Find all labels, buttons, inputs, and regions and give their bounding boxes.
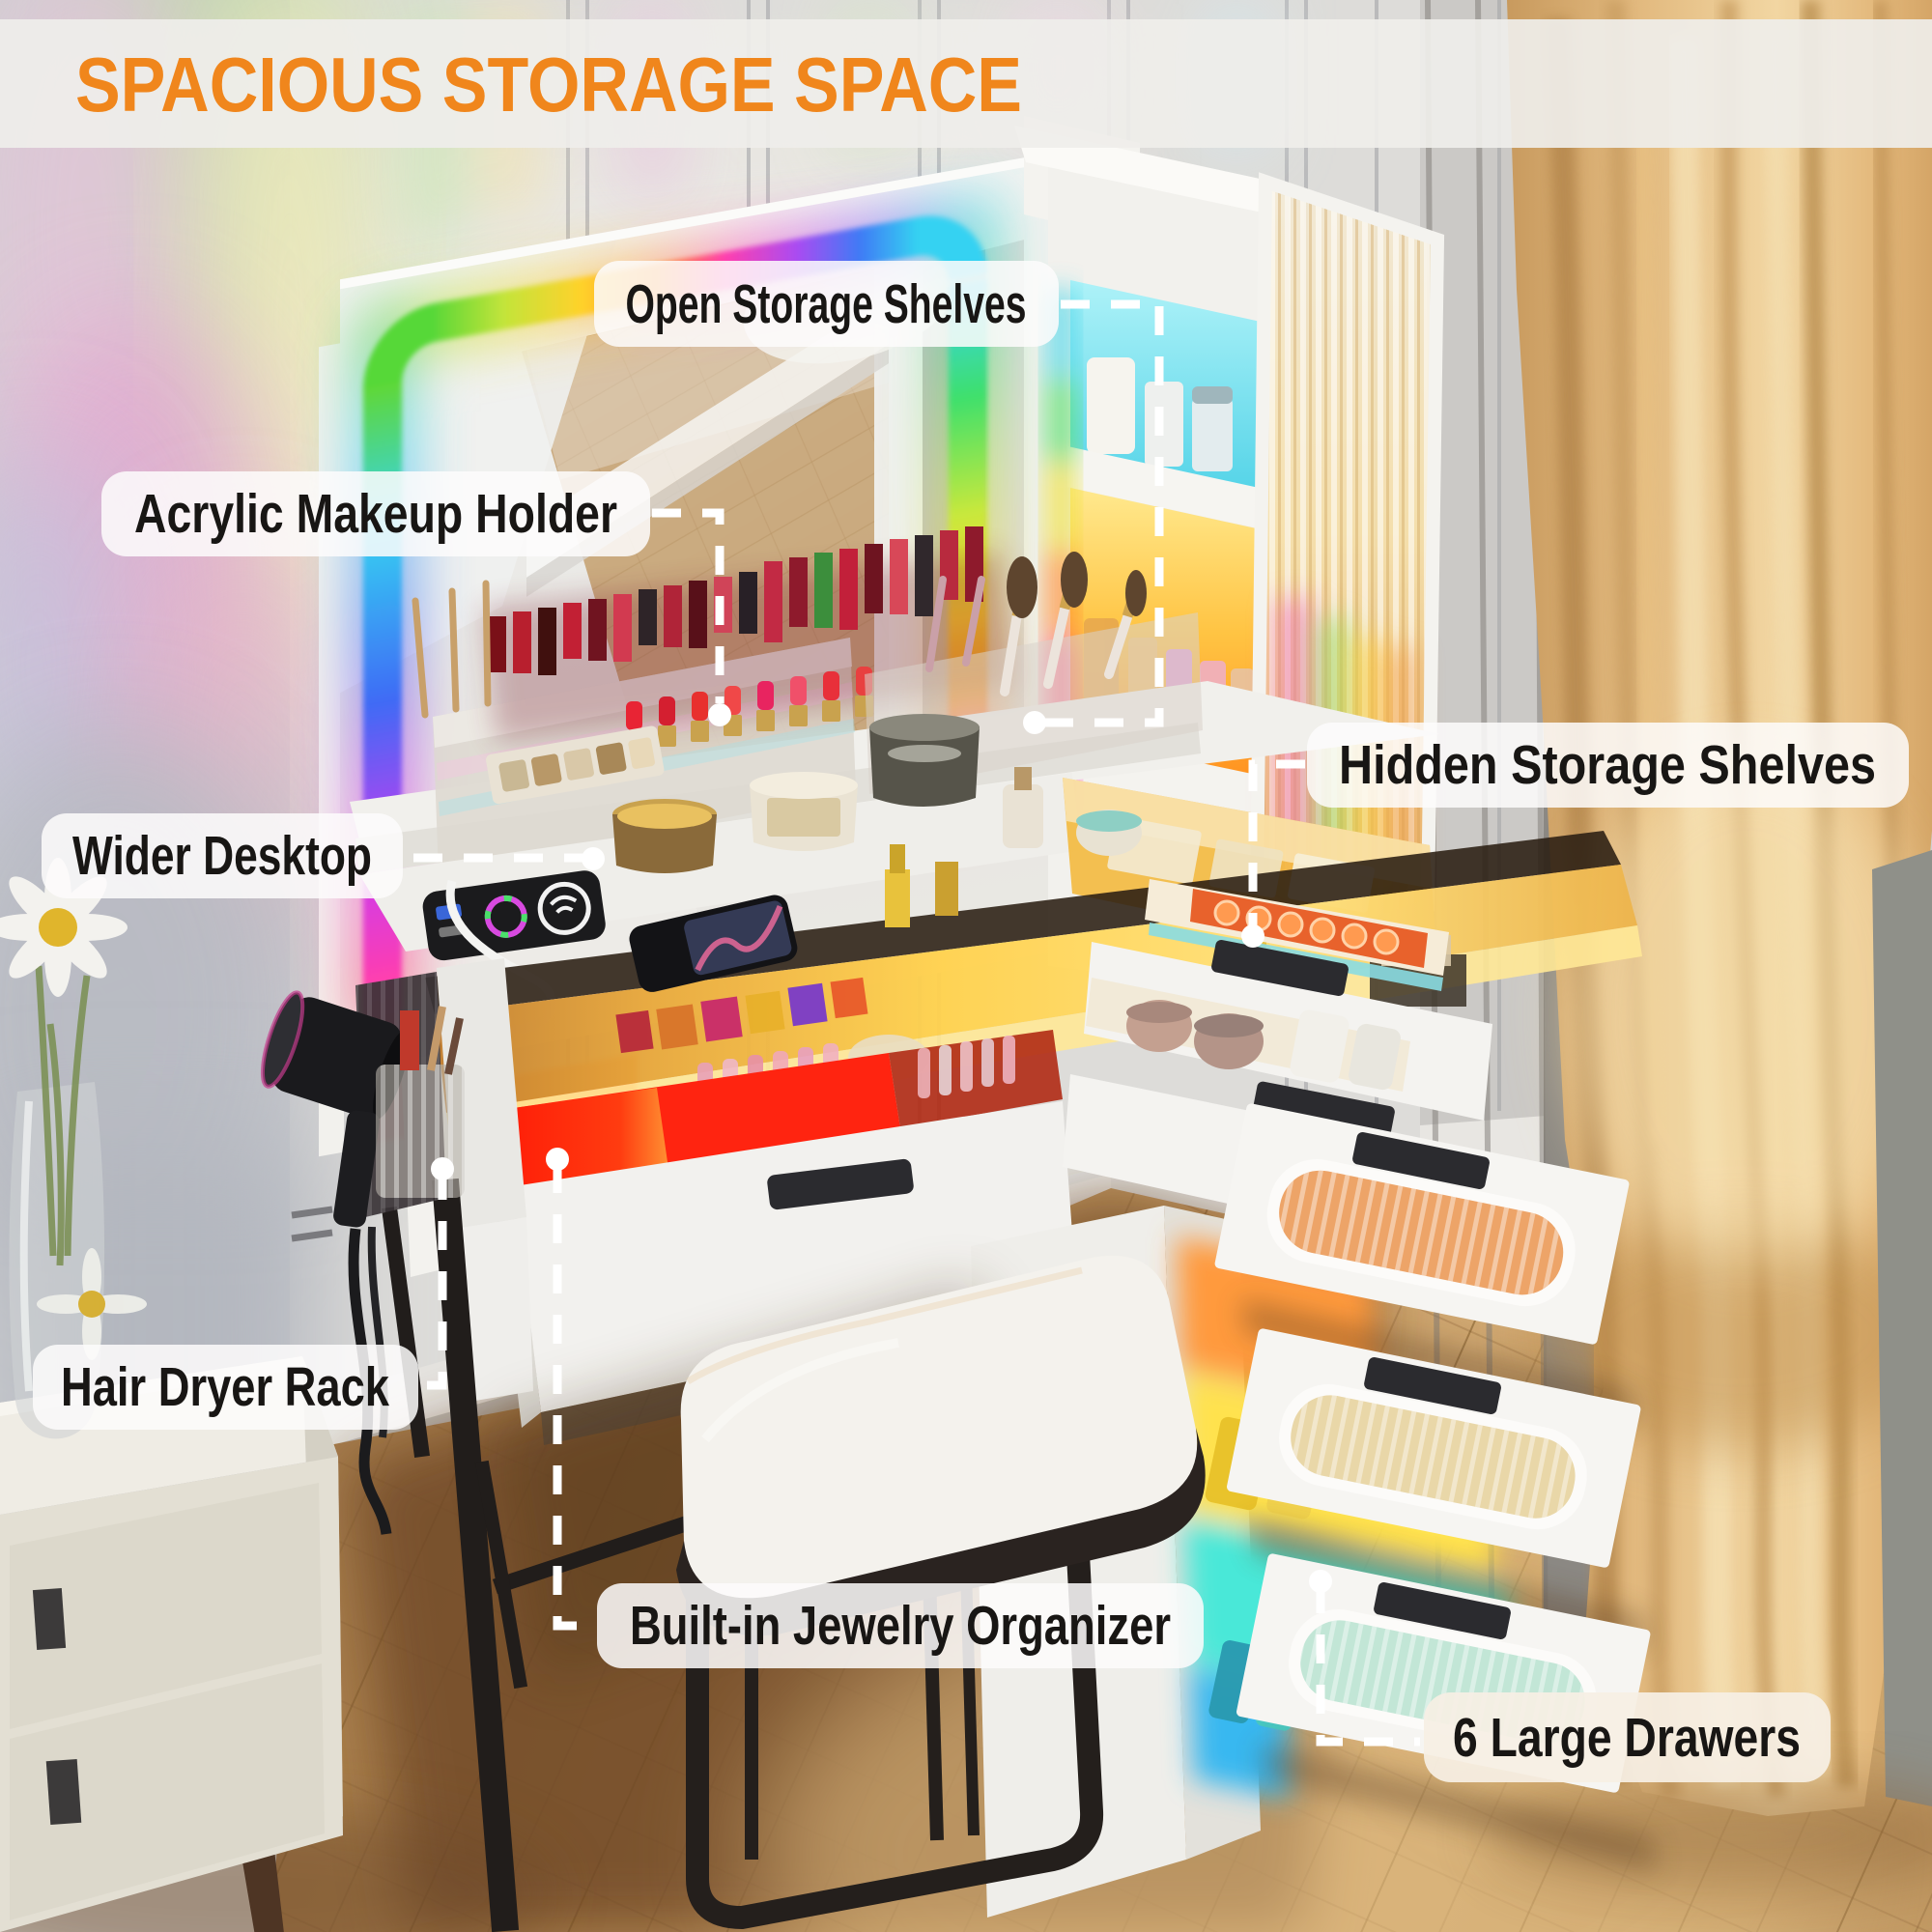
svg-text:Built-in Jewelry Organizer: Built-in Jewelry Organizer bbox=[630, 1595, 1171, 1657]
svg-text:6 Large Drawers: 6 Large Drawers bbox=[1453, 1707, 1801, 1769]
svg-text:Wider Desktop: Wider Desktop bbox=[72, 825, 372, 887]
svg-text:Hidden Storage Shelves: Hidden Storage Shelves bbox=[1339, 734, 1876, 796]
svg-text:Hair Dryer Rack: Hair Dryer Rack bbox=[61, 1356, 389, 1418]
svg-text:Acrylic Makeup Holder: Acrylic Makeup Holder bbox=[134, 483, 617, 545]
svg-text:SPACIOUS STORAGE SPACE: SPACIOUS STORAGE SPACE bbox=[75, 42, 1022, 128]
svg-text:Open Storage Shelves: Open Storage Shelves bbox=[626, 273, 1027, 335]
